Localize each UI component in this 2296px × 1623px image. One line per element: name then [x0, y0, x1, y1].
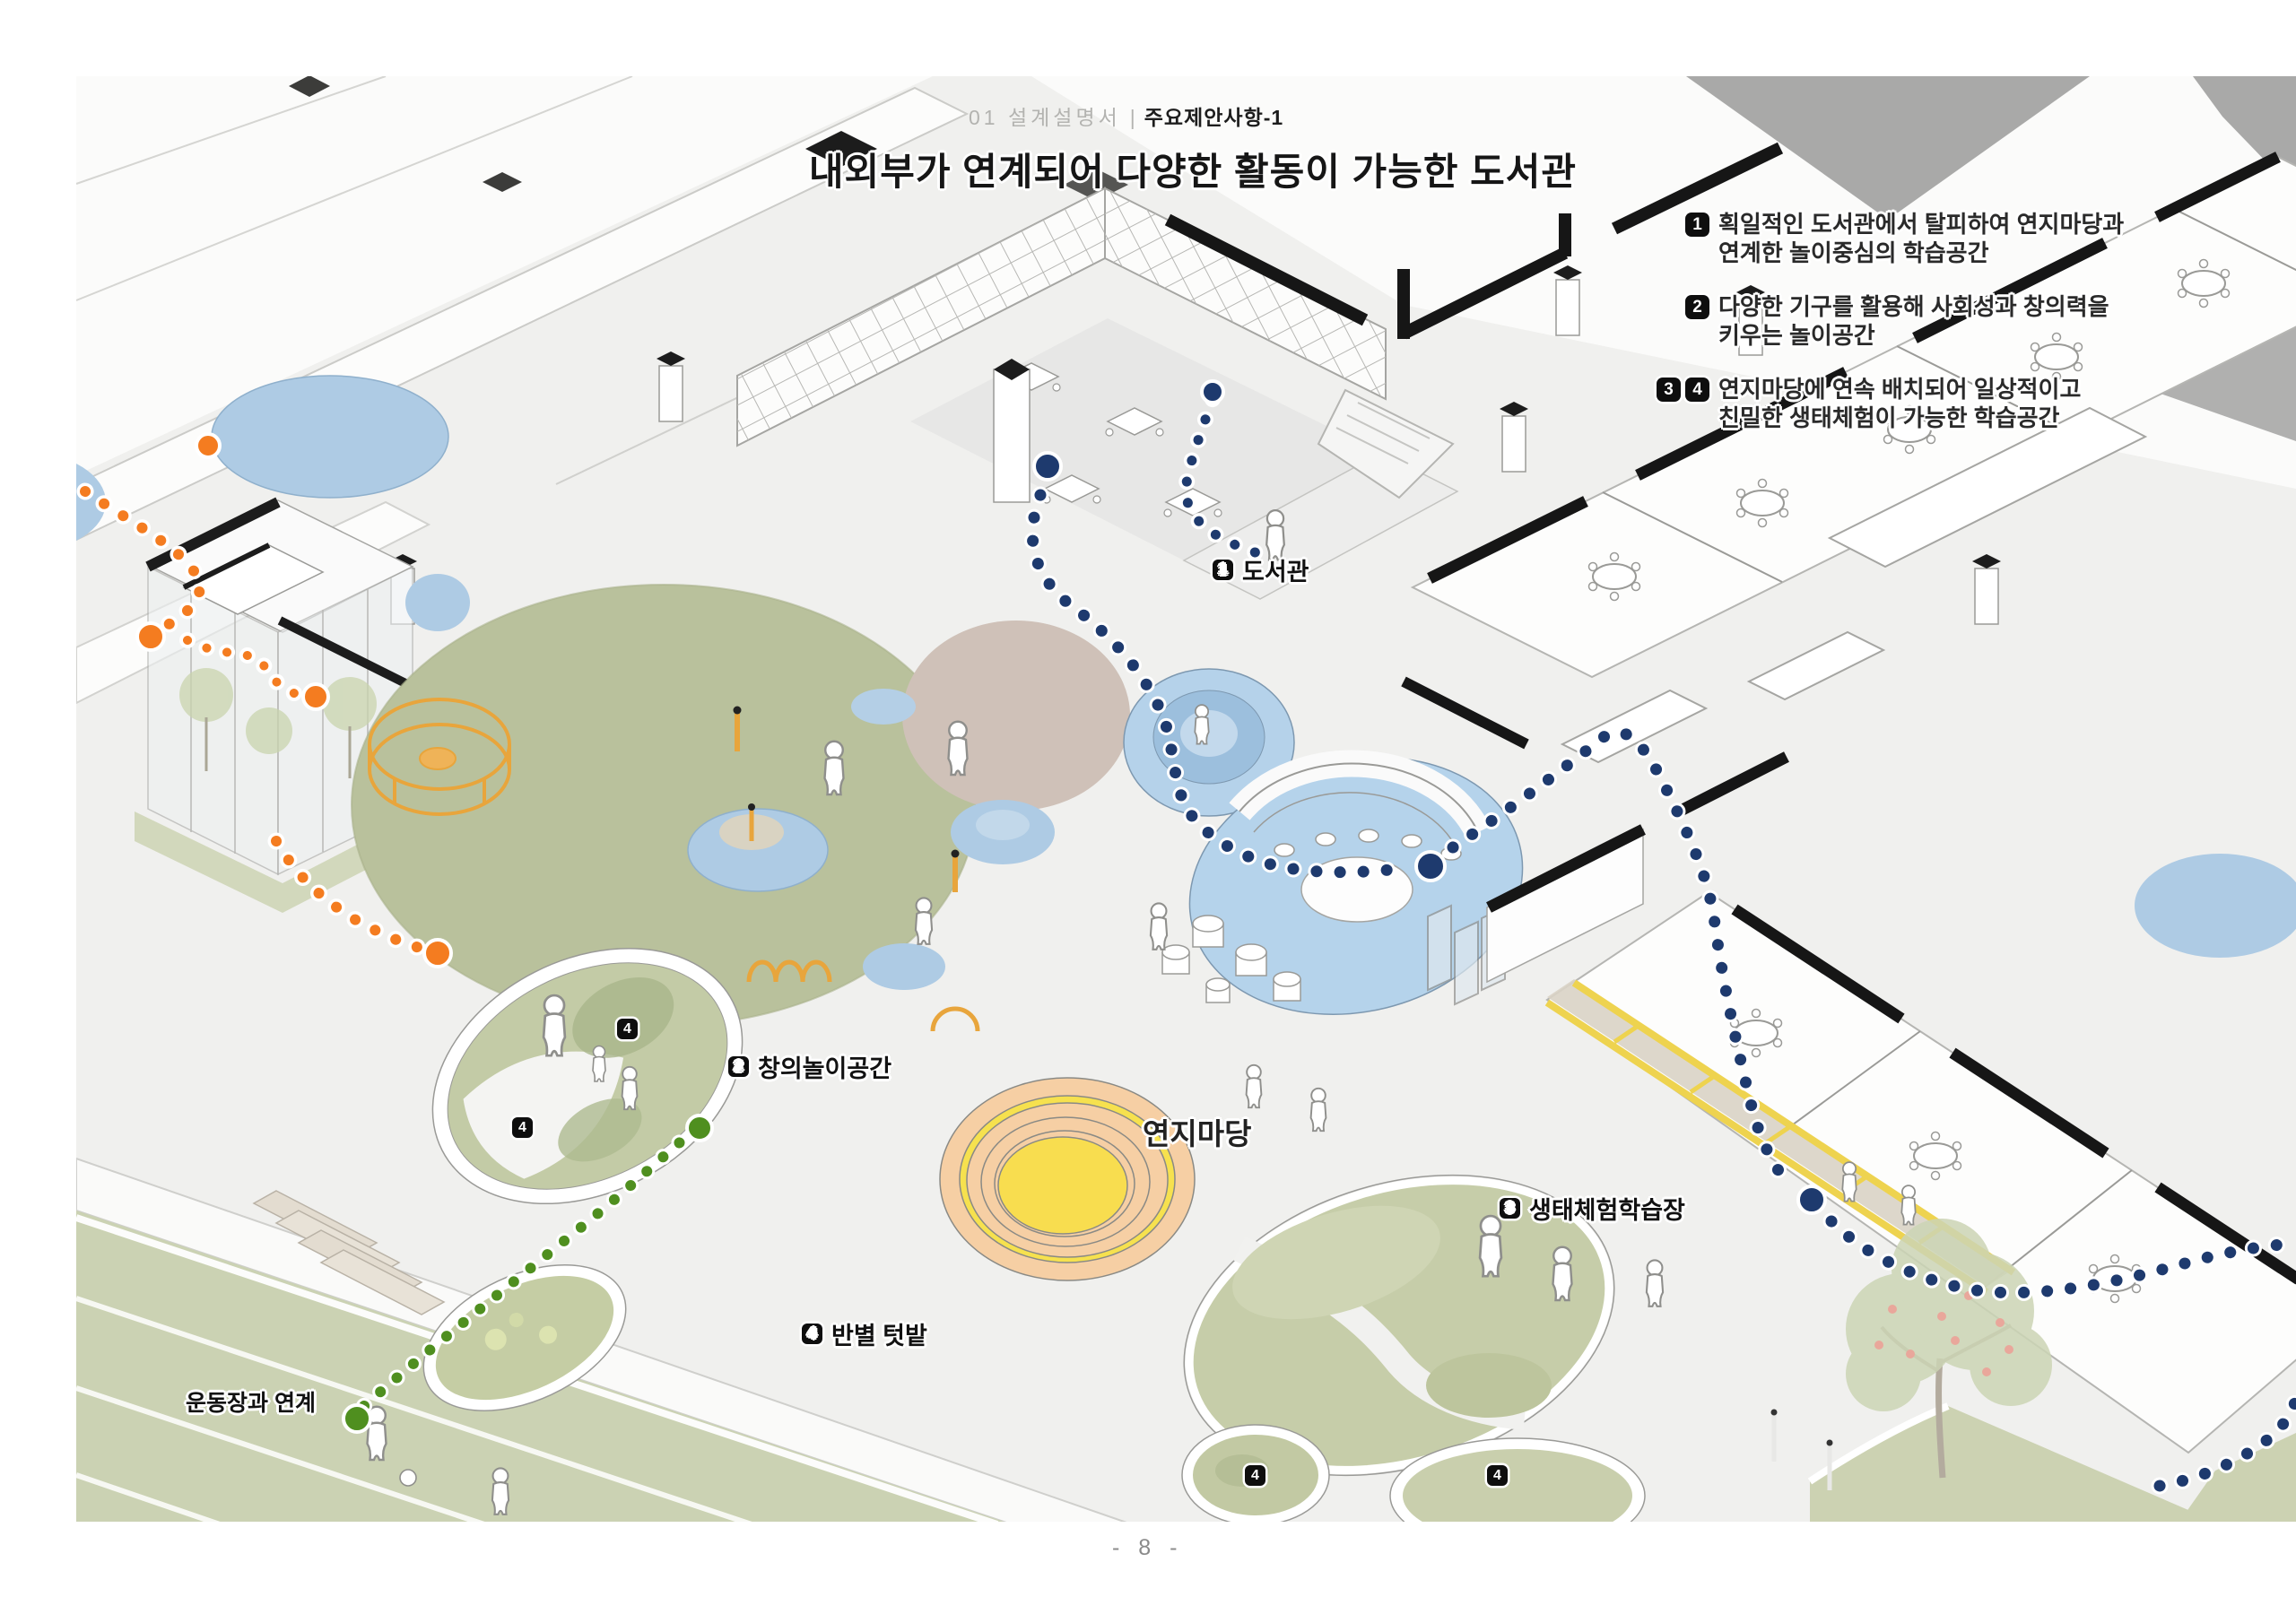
plan-label-text: 도서관: [1242, 552, 1309, 587]
numbered-badge: 4: [1685, 378, 1709, 402]
presentation-page: 01 설계설명서|주요제안사항-1 내외부가 연계되어 다양한 활동이 가능한 …: [0, 0, 2296, 1623]
numbered-badge: 2: [1685, 295, 1709, 319]
plan-label-creative-play: 2 창의놀이공간: [728, 1049, 891, 1084]
numbered-badge: 4: [617, 1019, 638, 1039]
numbered-badge: 3: [1657, 378, 1681, 402]
annotation-line: 연계한 놀이중심의 학습공간: [1718, 239, 2124, 267]
plan-label-text: 생태체험학습장: [1529, 1191, 1685, 1226]
header-divider: |: [1130, 106, 1135, 129]
annotation-item-2: 2 다양한 기구를 활용해 사회성과 창의력을 키우는 놀이공간: [1631, 292, 2124, 350]
plan-label-text: 반별 텃밭: [831, 1316, 927, 1351]
annotation-badges: 3 4: [1631, 375, 1709, 402]
annotation-item-3: 3 4 연지마당에 연속 배치되어 일상적이고 친밀한 생태체험이 가능한 학습…: [1631, 375, 2124, 432]
numbered-badge: 2: [728, 1056, 749, 1077]
annotation-line: 키우는 놀이공간: [1718, 321, 2109, 350]
annotation-list: 1 획일적인 도서관에서 탈피하여 연지마당과 연계한 놀이중심의 학습공간 2…: [1631, 210, 2124, 432]
numbered-badge: 1: [1685, 213, 1709, 237]
annotation-text: 연지마당에 연속 배치되어 일상적이고 친밀한 생태체험이 가능한 학습공간: [1718, 375, 2081, 432]
annotation-line: 친밀한 생태체험이 가능한 학습공간: [1718, 404, 2081, 432]
doc-subsection-label: 주요제안사항-1: [1144, 106, 1283, 129]
numbered-badge: 4: [802, 1324, 822, 1344]
page-title: 내외부가 연계되어 다양한 활동이 가능한 도서관: [700, 142, 1686, 196]
plan-label-eco-learning: 3 생태체험학습장: [1500, 1191, 1685, 1226]
annotation-badges: 2: [1631, 292, 1709, 319]
annotation-line: 연지마당에 연속 배치되어 일상적이고: [1718, 375, 2081, 404]
annotation-line: 다양한 기구를 활용해 사회성과 창의력을: [1718, 292, 2109, 321]
page-header: 01 설계설명서|주요제안사항-1: [969, 100, 1283, 131]
annotation-badges: 1: [1631, 210, 1709, 237]
plan-label-library: 1 도서관: [1213, 552, 1309, 587]
annotation-line: 획일적인 도서관에서 탈피하여 연지마당과: [1718, 210, 2124, 239]
numbered-badge: 4: [1245, 1465, 1265, 1486]
annotation-item-1: 1 획일적인 도서관에서 탈피하여 연지마당과 연계한 놀이중심의 학습공간: [1631, 210, 2124, 267]
plan-label-pond-plaza: 연지마당: [1143, 1110, 1251, 1153]
numbered-badge: 4: [512, 1117, 533, 1138]
doc-section-label: 01 설계설명서: [969, 106, 1121, 129]
page-number: - 8 -: [1112, 1535, 1183, 1561]
annotation-text: 다양한 기구를 활용해 사회성과 창의력을 키우는 놀이공간: [1718, 292, 2109, 350]
yeonji-pond-rings: [940, 1078, 1195, 1280]
numbered-badge: 3: [1500, 1198, 1520, 1219]
numbered-badge: 4: [1487, 1465, 1508, 1486]
plan-label-playground-link: 운동장과 연계: [186, 1385, 316, 1418]
annotation-text: 획일적인 도서관에서 탈피하여 연지마당과 연계한 놀이중심의 학습공간: [1718, 210, 2124, 267]
plan-label-text: 창의놀이공간: [758, 1049, 891, 1084]
numbered-badge: 1: [1213, 560, 1233, 580]
plan-label-class-garden: 4 반별 텃밭: [802, 1316, 927, 1351]
